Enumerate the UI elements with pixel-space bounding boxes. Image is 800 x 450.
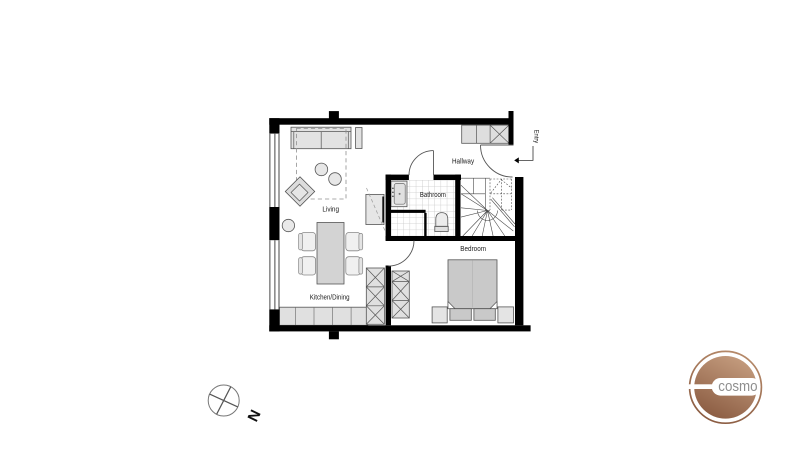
svg-text:Entry: Entry — [533, 130, 540, 144]
svg-text:Hallway: Hallway — [452, 158, 475, 165]
svg-text:Kitchen/Dining: Kitchen/Dining — [310, 294, 350, 301]
svg-text:Bathroom: Bathroom — [420, 192, 446, 199]
svg-text:Living: Living — [322, 207, 339, 214]
svg-text:Bedroom: Bedroom — [460, 246, 486, 253]
svg-text:cosmo: cosmo — [718, 378, 757, 395]
